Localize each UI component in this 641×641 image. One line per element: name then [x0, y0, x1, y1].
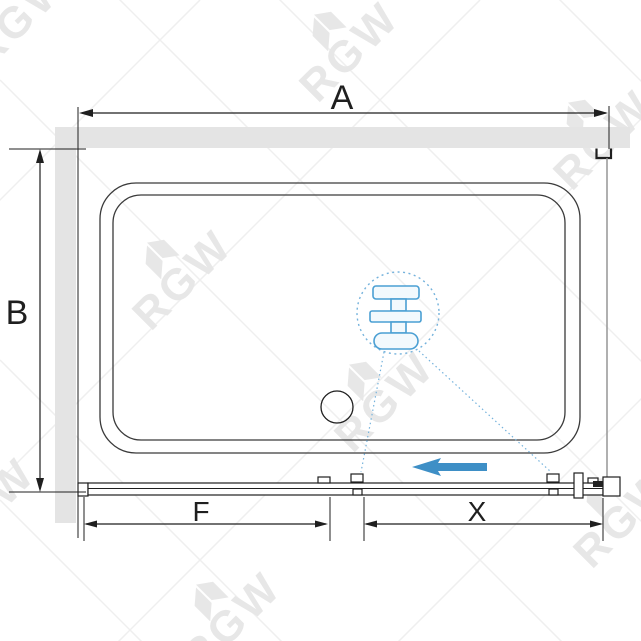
door-roller-right-lower — [549, 489, 558, 495]
roller-rail-top — [373, 286, 419, 299]
dimension-x-label: X — [468, 496, 487, 527]
watermark-text: RGW — [0, 0, 79, 77]
door-roller-left-lower — [353, 489, 362, 495]
roller-stem-lower — [391, 322, 406, 333]
watermark-unit: RGW — [153, 543, 291, 641]
wall-top — [55, 127, 630, 148]
watermark-unit: RGW — [0, 0, 79, 77]
arrowhead-right — [315, 521, 328, 528]
door-handle — [574, 473, 583, 498]
dimension-a-label: A — [331, 79, 354, 117]
walls — [55, 127, 630, 523]
arrowhead-left — [84, 521, 97, 528]
slide-direction-arrow-icon — [412, 458, 487, 476]
wall-left — [55, 127, 76, 523]
watermark-text: RGW — [123, 220, 242, 339]
watermark-text: RGW — [172, 562, 291, 641]
wall-profile-left-end — [78, 483, 88, 496]
watermark-unit: RGW — [0, 429, 45, 567]
watermark-unit: RGW — [545, 439, 641, 577]
wall-profile-right-end — [603, 477, 620, 496]
watermark-text: RGW — [325, 342, 444, 461]
watermark-layer: RGW RGW RGW RGW RGW RGW — [0, 0, 641, 641]
door-clip-left — [318, 477, 330, 483]
roller-stem-upper — [391, 299, 406, 311]
side-glass-panel — [597, 149, 612, 479]
arrowhead-left — [364, 521, 377, 528]
shower-enclosure-plan-diagram: RGW RGW RGW RGW RGW RGW — [0, 0, 641, 641]
door-roller-right — [547, 474, 559, 482]
arrowhead-top — [36, 149, 44, 163]
dimension-x: X — [364, 496, 603, 541]
arrowhead-left — [79, 109, 93, 117]
watermark-text: RGW — [0, 448, 45, 567]
watermark-unit: RGW — [104, 201, 242, 339]
roller-wheel — [374, 333, 418, 349]
dimension-b-label: B — [6, 294, 29, 332]
dimension-f: F — [84, 496, 330, 541]
sliding-door-assembly — [78, 473, 620, 498]
door-roller-left — [351, 474, 363, 482]
tray-inner-edge — [113, 195, 565, 440]
dimension-f-label: F — [192, 496, 209, 527]
roller-rail-mid — [370, 311, 421, 322]
door-end-bracket — [593, 481, 603, 487]
